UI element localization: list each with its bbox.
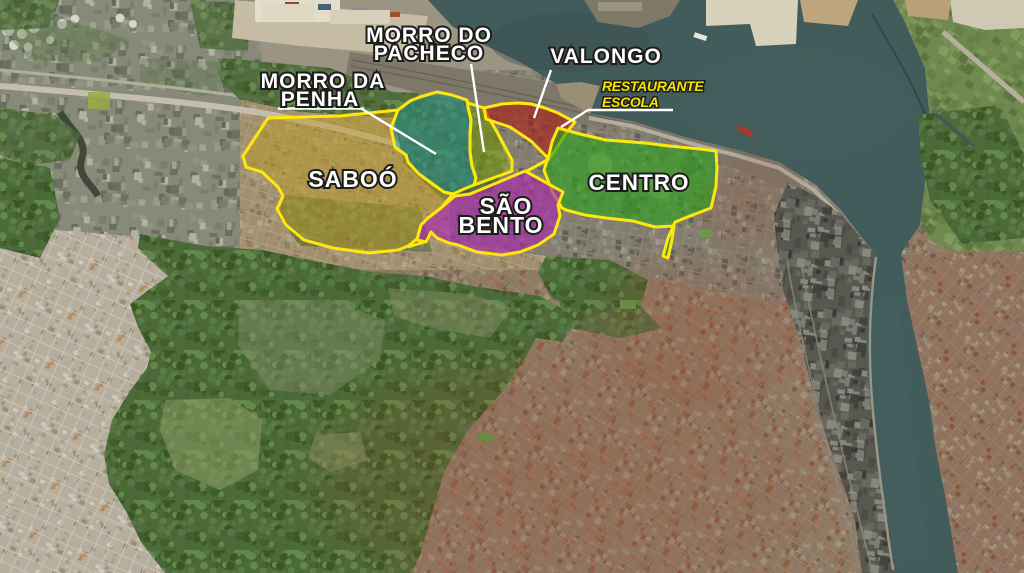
svg-text:ESCOLA: ESCOLA xyxy=(602,94,659,110)
svg-text:CENTRO: CENTRO xyxy=(589,170,690,195)
svg-text:VALONGO: VALONGO xyxy=(550,45,662,68)
svg-text:SABOÓ: SABOÓ xyxy=(308,165,397,192)
svg-text:PACHECO: PACHECO xyxy=(374,42,484,65)
svg-text:RESTAURANTE: RESTAURANTE xyxy=(602,78,704,94)
svg-text:PENHA: PENHA xyxy=(281,88,360,111)
svg-text:BENTO: BENTO xyxy=(458,212,543,238)
